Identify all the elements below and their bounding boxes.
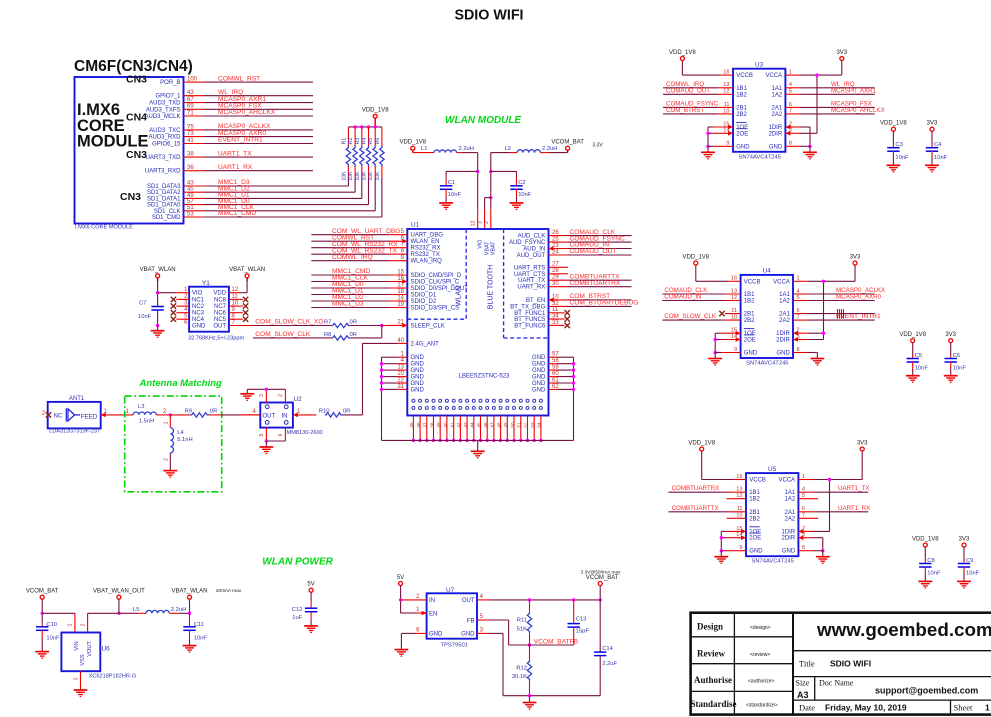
svg-text:1B1: 1B1 (736, 86, 747, 92)
svg-text:2DIR: 2DIR (769, 131, 783, 137)
svg-text:GND: GND (411, 355, 425, 361)
svg-text:UART_RX: UART_RX (517, 285, 545, 291)
svg-text:Date: Date (799, 703, 815, 713)
svg-text:39: 39 (436, 422, 441, 428)
svg-text:VCCB: VCCB (736, 73, 753, 79)
svg-text:NC8: NC8 (214, 297, 227, 303)
svg-text:35: 35 (409, 422, 414, 428)
svg-text:U4: U4 (763, 268, 772, 275)
svg-text:2A1: 2A1 (785, 510, 796, 516)
svg-text:C6: C6 (953, 353, 960, 359)
svg-text:VDD_1V8: VDD_1V8 (669, 50, 696, 56)
svg-text:1DIR: 1DIR (769, 125, 783, 131)
svg-text:VCCA: VCCA (779, 478, 796, 484)
svg-text:1A1: 1A1 (772, 86, 783, 92)
svg-text:SDIO_CLK/SPI_C: SDIO_CLK/SPI_C (411, 280, 460, 286)
svg-text:EVENT_INTR1: EVENT_INTR1 (218, 137, 263, 144)
svg-text:40: 40 (443, 422, 448, 428)
svg-text:NC5: NC5 (214, 317, 227, 323)
svg-text:2.2uH: 2.2uH (171, 607, 186, 613)
svg-text:VDD_1V8: VDD_1V8 (899, 332, 926, 338)
svg-text:C8: C8 (927, 558, 934, 564)
svg-text:2B1: 2B1 (736, 105, 747, 111)
svg-text:VCCA: VCCA (773, 279, 790, 285)
svg-text:GND: GND (744, 351, 758, 357)
svg-text:L2: L2 (505, 146, 511, 152)
svg-text:50: 50 (510, 422, 515, 428)
svg-text:UART_RTS: UART_RTS (514, 265, 545, 271)
svg-text:3.3V: 3.3V (592, 142, 603, 148)
svg-text:2: 2 (278, 394, 284, 397)
svg-text:COM_BTUARTDEBUG: COM_BTUARTDEBUG (570, 300, 639, 307)
svg-text:SN74AVC4T245: SN74AVC4T245 (746, 361, 788, 367)
svg-text:SDIO_CMD/SPI_D: SDIO_CMD/SPI_D (411, 273, 462, 279)
svg-text:3.3V@500mA max: 3.3V@500mA max (581, 570, 622, 576)
svg-text:37: 37 (423, 422, 428, 428)
svg-text:AUD3_TXD: AUD3_TXD (149, 101, 181, 107)
svg-text:BT_FUNC5: BT_FUNC5 (514, 317, 546, 323)
svg-text:Friday, May 10, 2019: Friday, May 10, 2019 (825, 703, 907, 713)
svg-text:U1: U1 (411, 222, 420, 229)
svg-text:10K: 10K (368, 171, 374, 181)
svg-text:NC4: NC4 (192, 317, 205, 323)
svg-text:VBAT_WLAN: VBAT_WLAN (140, 267, 176, 273)
svg-text:IN: IN (282, 413, 288, 419)
svg-text:SD1_CLK: SD1_CLK (154, 209, 181, 215)
svg-text:R5: R5 (368, 138, 374, 145)
svg-text:BT_FUNC6: BT_FUNC6 (514, 323, 546, 329)
svg-text:MODULE: MODULE (77, 133, 149, 151)
svg-text:U6: U6 (102, 646, 111, 653)
svg-text:COM_BTRST: COM_BTRST (666, 107, 704, 114)
svg-text:12: 12 (471, 221, 477, 227)
svg-text:1A2: 1A2 (785, 497, 796, 503)
svg-text:3V3: 3V3 (857, 440, 868, 446)
svg-text:2.4G_ANT: 2.4G_ANT (411, 341, 440, 347)
svg-text:GND: GND (776, 351, 790, 357)
svg-text:51K: 51K (517, 626, 527, 632)
svg-text:3V3: 3V3 (850, 254, 861, 260)
svg-text:2A2: 2A2 (779, 318, 790, 324)
svg-text:1B1: 1B1 (744, 292, 755, 298)
svg-text:Y1: Y1 (202, 280, 210, 287)
svg-text:R3: R3 (355, 138, 361, 145)
svg-text:10K: 10K (348, 171, 354, 181)
svg-text:GND: GND (782, 549, 796, 555)
svg-text:GPIO7_1: GPIO7_1 (155, 94, 181, 100)
svg-text:OUT: OUT (462, 598, 475, 604)
svg-text:MCASP0_AHCLKX: MCASP0_AHCLKX (218, 109, 276, 116)
svg-text:3: 3 (73, 677, 79, 680)
svg-text:AUD_IN: AUD_IN (523, 247, 545, 253)
svg-text:WLAN MODULE: WLAN MODULE (445, 115, 521, 126)
svg-text:10nF: 10nF (518, 192, 532, 198)
svg-text:VCOM_BATFB: VCOM_BATFB (534, 639, 579, 646)
svg-text:Title: Title (799, 659, 815, 669)
svg-text:RS232_RX: RS232_RX (411, 246, 441, 252)
svg-text:COM_SLOW_CLK_XO: COM_SLOW_CLK_XO (255, 318, 323, 325)
svg-text:COMWL_IRQ: COMWL_IRQ (332, 254, 373, 261)
svg-text:VSS: VSS (80, 654, 86, 665)
svg-text:COM_SLOW_CLK: COM_SLOW_CLK (664, 313, 716, 320)
svg-text:AUD_FSYNC: AUD_FSYNC (509, 240, 546, 246)
svg-text:10K: 10K (355, 171, 361, 181)
svg-text:UART3_RXD: UART3_RXD (145, 169, 181, 175)
svg-text:C5: C5 (915, 353, 922, 359)
svg-text:UART1_RX: UART1_RX (838, 505, 870, 512)
svg-text:38: 38 (429, 422, 434, 428)
svg-text:VIN: VIN (74, 641, 80, 650)
svg-text:IN: IN (429, 598, 435, 604)
svg-text:2: 2 (80, 623, 86, 626)
svg-text:AUD_CLK: AUD_CLK (518, 234, 546, 240)
svg-text:10nF: 10nF (927, 571, 941, 577)
svg-text:44: 44 (470, 422, 475, 428)
svg-text:GND: GND (411, 387, 425, 393)
svg-text:1A1: 1A1 (779, 292, 790, 298)
svg-text:Size: Size (796, 679, 810, 688)
svg-text:Standardise: Standardise (691, 699, 737, 709)
svg-text:VDD_1V8: VDD_1V8 (682, 254, 709, 260)
svg-text:10nF: 10nF (966, 571, 980, 577)
svg-text:SDIO WIFI: SDIO WIFI (830, 659, 871, 669)
svg-text:VBAT_WLAN: VBAT_WLAN (172, 589, 208, 595)
svg-text:1A2: 1A2 (772, 92, 783, 98)
svg-text:C12: C12 (292, 607, 303, 613)
svg-text:AUD_OUT: AUD_OUT (517, 253, 546, 259)
svg-text:A3: A3 (797, 690, 809, 700)
svg-text:2B1: 2B1 (749, 510, 760, 516)
svg-text:VIO: VIO (192, 291, 203, 297)
svg-text:R6: R6 (375, 138, 381, 145)
svg-text:Sheet: Sheet (954, 703, 974, 713)
svg-text:UART1_TX: UART1_TX (838, 485, 870, 492)
svg-text:NC6: NC6 (214, 311, 227, 317)
svg-text:1B2: 1B2 (744, 299, 755, 305)
svg-text:R2: R2 (348, 138, 354, 145)
svg-text:SLEEP_CLK: SLEEP_CLK (411, 323, 445, 329)
svg-text:1uF: 1uF (292, 615, 302, 621)
svg-text:NC1: NC1 (192, 297, 205, 303)
svg-text:LBEE5ZSTNC-523: LBEE5ZSTNC-523 (459, 374, 510, 380)
svg-text:COM_SLOW_CLK: COM_SLOW_CLK (255, 331, 311, 338)
svg-text:SDIO_D3/SPI_CS: SDIO_D3/SPI_CS (411, 306, 460, 312)
svg-text:C2: C2 (518, 180, 525, 186)
svg-text:0R: 0R (350, 332, 357, 338)
svg-text:R11: R11 (517, 618, 527, 624)
svg-text:C13: C13 (576, 617, 587, 623)
svg-text:1A1: 1A1 (785, 490, 796, 496)
svg-text:AUD3_RXD: AUD3_RXD (148, 135, 181, 141)
svg-text:1OE: 1OE (749, 529, 761, 535)
svg-text:0R: 0R (350, 319, 357, 325)
svg-text:SD1_DATA1: SD1_DATA1 (147, 196, 181, 202)
svg-text:GND: GND (749, 549, 763, 555)
svg-text:Antenna Matching: Antenna Matching (139, 378, 223, 389)
svg-text:1DIR: 1DIR (776, 331, 790, 337)
svg-text:SDIO WIFI: SDIO WIFI (454, 8, 523, 24)
svg-text:OUT: OUT (213, 324, 226, 330)
svg-text:MCASP0_AXR0: MCASP0_AXR0 (836, 294, 882, 301)
svg-text:SDIO_D2: SDIO_D2 (411, 299, 437, 305)
svg-text:C4: C4 (934, 142, 942, 148)
svg-text:VDD_1V8: VDD_1V8 (399, 140, 426, 146)
svg-text:32.768KHz,5+/-23ppm: 32.768KHz,5+/-23ppm (188, 336, 244, 342)
svg-text:Doc Name: Doc Name (819, 679, 854, 688)
svg-text:GND: GND (532, 387, 546, 393)
svg-text:VDD_1V8: VDD_1V8 (688, 440, 715, 446)
svg-text:3V3: 3V3 (959, 536, 970, 542)
svg-text:SD1_DATA2: SD1_DATA2 (147, 190, 181, 196)
svg-text:COMBTUARTRX: COMBTUARTRX (672, 485, 720, 492)
svg-text:MMC1_CMD: MMC1_CMD (218, 210, 256, 217)
svg-text:GND: GND (532, 355, 546, 361)
svg-text:UART3_TXD: UART3_TXD (146, 155, 182, 161)
svg-text:VBAT_WLAN_OUT: VBAT_WLAN_OUT (93, 589, 145, 595)
svg-text:EN: EN (429, 611, 437, 617)
svg-text:36: 36 (416, 422, 421, 428)
svg-text:POR_B: POR_B (160, 80, 180, 86)
svg-text:NC3: NC3 (192, 311, 205, 317)
svg-text:COMAUD_IN: COMAUD_IN (664, 294, 701, 301)
svg-text:15pF: 15pF (576, 628, 590, 634)
svg-text:COMAUD_OUT: COMAUD_OUT (570, 248, 617, 255)
svg-text:<design>: <design> (750, 625, 771, 631)
svg-text:3: 3 (478, 221, 484, 224)
svg-text:GND: GND (532, 375, 546, 381)
svg-text:C3: C3 (895, 142, 902, 148)
svg-text:1: 1 (163, 421, 169, 424)
svg-text:U5: U5 (768, 466, 777, 473)
svg-text:3V3: 3V3 (945, 332, 956, 338)
svg-text:CN3: CN3 (126, 149, 147, 161)
svg-text:1B1: 1B1 (749, 490, 760, 496)
svg-text:54: 54 (537, 422, 542, 428)
svg-text:VBAT_WLAN: VBAT_WLAN (229, 267, 265, 273)
svg-text:COMBTUARTRX: COMBTUARTRX (570, 280, 621, 287)
svg-text:<review>: <review> (750, 652, 770, 658)
svg-text:OUT: OUT (263, 413, 276, 419)
svg-text:C14: C14 (602, 646, 613, 652)
svg-text:GND: GND (429, 632, 443, 638)
svg-text:UART1_RX: UART1_RX (218, 164, 253, 171)
svg-text:WLAN POWER: WLAN POWER (262, 557, 333, 568)
svg-text:2OE: 2OE (749, 536, 761, 542)
svg-text:2B2: 2B2 (744, 318, 755, 324)
svg-text:2: 2 (163, 458, 169, 461)
svg-text:SDIO_D0/SPI_DOUT: SDIO_D0/SPI_DOUT (411, 286, 469, 292)
svg-text:47: 47 (490, 422, 495, 428)
svg-text:GND: GND (411, 368, 425, 374)
svg-text:53: 53 (530, 422, 535, 428)
svg-text:L5: L5 (133, 607, 139, 613)
svg-text:2A1: 2A1 (779, 312, 790, 318)
svg-text:SD1_DATA3: SD1_DATA3 (147, 184, 181, 190)
svg-text:3V3: 3V3 (927, 121, 938, 127)
svg-text:5V: 5V (397, 575, 404, 581)
svg-text:SD1_CMD: SD1_CMD (152, 215, 181, 221)
svg-text:VCCB: VCCB (749, 478, 766, 484)
svg-text:GND: GND (411, 381, 425, 387)
svg-text:GPIO6_15: GPIO6_15 (152, 142, 181, 148)
svg-text:VCOM_BAT: VCOM_BAT (26, 589, 59, 595)
svg-text:49: 49 (503, 422, 508, 428)
svg-text:52: 52 (523, 422, 528, 428)
svg-text:VCCA: VCCA (766, 73, 783, 79)
svg-text:AUD3_TXC: AUD3_TXC (149, 128, 181, 134)
svg-text:UART1_TX: UART1_TX (218, 150, 252, 157)
svg-text:VDD_1V8: VDD_1V8 (880, 121, 907, 127)
svg-text:GND: GND (532, 368, 546, 374)
svg-text:XC6218P182HR-G: XC6218P182HR-G (89, 674, 137, 680)
svg-text:FB: FB (467, 618, 475, 624)
svg-text:UART_CTS: UART_CTS (514, 272, 546, 278)
svg-text:41: 41 (450, 422, 455, 428)
svg-text:10K: 10K (362, 171, 368, 181)
svg-text:VDD_1V8: VDD_1V8 (362, 108, 389, 114)
svg-text:GND: GND (461, 632, 475, 638)
svg-text:WLAN_IRQ: WLAN_IRQ (411, 259, 443, 265)
svg-text:NC7: NC7 (214, 304, 227, 310)
svg-text:Review: Review (697, 649, 725, 659)
svg-text:2.2uH: 2.2uH (542, 146, 557, 152)
svg-text:NC: NC (54, 413, 63, 419)
svg-text:I.MX6 CORE MODULE: I.MX6 CORE MODULE (75, 225, 133, 231)
svg-text:2OE: 2OE (736, 131, 748, 137)
svg-text:MMC1_D3: MMC1_D3 (332, 301, 364, 308)
svg-text:42: 42 (456, 422, 461, 428)
svg-text:43: 43 (463, 422, 468, 428)
svg-text:GND: GND (532, 362, 546, 368)
svg-text:10nF: 10nF (895, 155, 909, 161)
svg-text:10K: 10K (375, 171, 381, 181)
svg-text:30.1K: 30.1K (512, 674, 527, 680)
svg-text:C10: C10 (46, 622, 57, 628)
svg-text:VCOM_BAT: VCOM_BAT (586, 575, 619, 581)
svg-text:GND: GND (769, 144, 783, 150)
svg-text:6: 6 (278, 433, 284, 436)
svg-text:R8: R8 (324, 332, 331, 338)
svg-text:46: 46 (483, 422, 488, 428)
svg-text:GND: GND (411, 375, 425, 381)
svg-text:2B1: 2B1 (744, 312, 755, 318)
svg-text:10nF: 10nF (448, 192, 462, 198)
svg-text:U3: U3 (755, 62, 764, 69)
svg-text:AUD3_MCLK: AUD3_MCLK (144, 114, 180, 120)
svg-text:Design: Design (697, 622, 723, 632)
svg-text:VDD: VDD (213, 291, 226, 297)
svg-text:C9: C9 (966, 558, 973, 564)
svg-text:2A1: 2A1 (772, 105, 783, 111)
svg-text:2DIR: 2DIR (776, 338, 790, 344)
svg-text:2.2uH: 2.2uH (459, 146, 474, 152)
svg-text:3V3: 3V3 (836, 50, 847, 56)
svg-text:2DIR: 2DIR (782, 536, 796, 542)
svg-text:GND: GND (192, 324, 206, 330)
svg-text:AUD3_TXFS: AUD3_TXFS (146, 107, 181, 113)
svg-text:2B2: 2B2 (736, 112, 747, 118)
svg-text:VOUT: VOUT (87, 641, 93, 657)
svg-text:3: 3 (259, 394, 265, 397)
svg-text:RS232_TX: RS232_TX (411, 252, 440, 258)
svg-text:VBAT: VBAT (491, 241, 497, 255)
svg-text:48: 48 (496, 422, 501, 428)
svg-text:BT_EN: BT_EN (526, 298, 545, 304)
svg-text:R12: R12 (516, 665, 527, 671)
svg-text:SN74AVC4T245: SN74AVC4T245 (752, 559, 794, 565)
svg-text:1OE: 1OE (744, 331, 756, 337)
svg-text:1: 1 (68, 623, 74, 626)
svg-text:CN3: CN3 (126, 73, 147, 85)
svg-text:200mA max: 200mA max (216, 588, 242, 594)
svg-text:2OE: 2OE (744, 338, 756, 344)
svg-text:LDA312G7313F-237: LDA312G7313F-237 (49, 429, 100, 435)
svg-text:BT_TX_DBG: BT_TX_DBG (510, 304, 545, 310)
svg-text:1B2: 1B2 (736, 92, 747, 98)
svg-text:1: 1 (985, 703, 990, 713)
svg-text:MCASP0_AXR1: MCASP0_AXR1 (831, 87, 877, 94)
svg-text:5V: 5V (307, 582, 314, 588)
svg-text:FEED: FEED (81, 413, 98, 420)
svg-text:support@goembed.com: support@goembed.com (875, 686, 978, 696)
svg-text:<standardize>: <standardize> (746, 703, 778, 709)
svg-text:2B2: 2B2 (749, 516, 760, 522)
svg-text:1B2: 1B2 (749, 497, 760, 503)
svg-text:45: 45 (476, 422, 481, 428)
svg-text:2A2: 2A2 (772, 112, 783, 118)
svg-text:MM8130-2600: MM8130-2600 (287, 430, 323, 436)
svg-text:2A2: 2A2 (785, 516, 796, 522)
svg-text:SD1_DATA0: SD1_DATA0 (147, 203, 181, 209)
svg-text:U2: U2 (294, 396, 303, 403)
svg-text:UART_TX: UART_TX (518, 278, 545, 284)
svg-text:NC2: NC2 (192, 304, 205, 310)
svg-text:10nF: 10nF (46, 635, 60, 641)
svg-text:VIO: VIO (478, 240, 484, 249)
svg-text:C7: C7 (139, 301, 146, 307)
svg-text:10nF: 10nF (934, 155, 948, 161)
svg-text:5.1nH: 5.1nH (177, 437, 192, 443)
svg-text:VCOM_BAT: VCOM_BAT (551, 140, 584, 146)
svg-text:0R: 0R (210, 409, 217, 415)
svg-text:2.2uF: 2.2uF (602, 661, 617, 667)
svg-text:U7: U7 (446, 587, 455, 594)
svg-text:10K: 10K (341, 171, 347, 181)
svg-text:1DIR: 1DIR (782, 529, 796, 535)
svg-text:R1: R1 (341, 138, 347, 145)
svg-text:MCASP0_AHCLKX: MCASP0_AHCLKX (831, 107, 885, 114)
svg-text:BT_FUNC1: BT_FUNC1 (514, 311, 546, 317)
svg-text:1.5nH: 1.5nH (139, 418, 154, 424)
svg-text:GND: GND (532, 381, 546, 387)
svg-text:COMAUD_OUT: COMAUD_OUT (666, 87, 710, 94)
svg-text:COMWL_RST: COMWL_RST (218, 75, 260, 82)
svg-text:C11: C11 (194, 622, 204, 628)
svg-text:10nF: 10nF (953, 366, 967, 372)
svg-text:R7: R7 (324, 319, 331, 325)
svg-text:2: 2 (484, 221, 490, 224)
svg-text:L3: L3 (138, 404, 144, 410)
svg-text:GND: GND (736, 144, 750, 150)
svg-text:SDIO_D1: SDIO_D1 (411, 293, 437, 299)
svg-text:C1: C1 (448, 180, 455, 186)
svg-text:CN3: CN3 (120, 191, 141, 203)
svg-text:10nF: 10nF (138, 314, 152, 320)
svg-text:Authorise: Authorise (694, 675, 732, 685)
svg-text:0R: 0R (343, 409, 350, 415)
svg-text:SN74AVC4T245: SN74AVC4T245 (739, 154, 781, 160)
svg-text:VBAT: VBAT (484, 241, 490, 255)
